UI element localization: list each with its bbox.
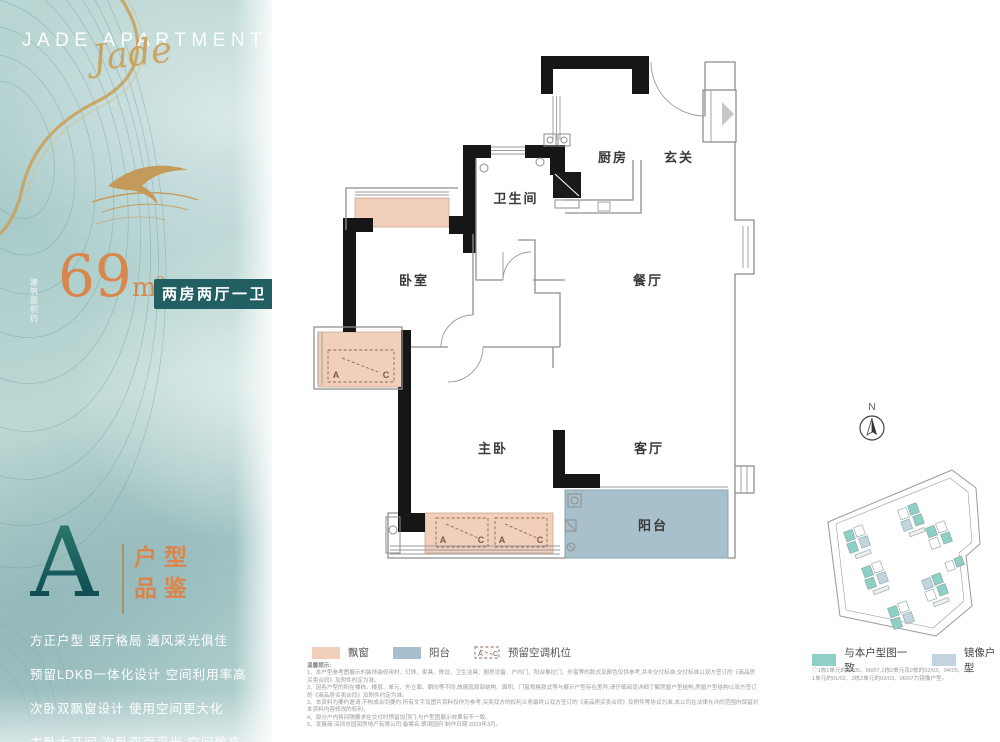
compass-n-label: N bbox=[850, 402, 894, 413]
svg-text:A: A bbox=[478, 651, 483, 658]
walls bbox=[343, 56, 649, 532]
kitchen-sink bbox=[598, 202, 610, 211]
same-unit-swatch bbox=[812, 654, 836, 666]
foyer-marker bbox=[722, 102, 734, 126]
room-bedroom: 卧室 bbox=[399, 273, 429, 288]
legend-bay: 飘窗 bbox=[312, 645, 369, 660]
site-map bbox=[806, 448, 998, 640]
bay-swatch bbox=[312, 647, 340, 659]
svg-text:A: A bbox=[499, 535, 506, 545]
svg-text:A: A bbox=[440, 535, 447, 545]
master-door-arc bbox=[448, 347, 483, 382]
mirror-unit-swatch bbox=[932, 654, 956, 666]
area-prefix: 建筑 面积约 bbox=[30, 278, 39, 323]
fixtures bbox=[386, 134, 581, 553]
legend-balcony: 阳台 bbox=[393, 645, 450, 660]
ac-slot-icon: A C bbox=[474, 646, 500, 659]
bathroom-door-arc bbox=[503, 252, 531, 280]
compass: N bbox=[850, 402, 894, 446]
balcony-swatch bbox=[393, 647, 421, 659]
room-living: 客厅 bbox=[634, 441, 664, 456]
swallow-icon bbox=[92, 166, 198, 224]
entry-door bbox=[651, 62, 705, 116]
feature-list: 方正户型 竖厅格局 通风采光俱佳 预留LDKB一体化设计 空间利用率高 次卧双飘… bbox=[30, 630, 265, 742]
svg-text:C: C bbox=[537, 535, 544, 545]
room-foyer: 玄关 bbox=[664, 150, 694, 165]
area-value: 69m2 bbox=[58, 242, 165, 310]
svg-text:C: C bbox=[478, 535, 485, 545]
brand-panel: JADE APARTMENTS Jade 建筑 面积约 69m2 两房两厅一卫 … bbox=[0, 0, 272, 742]
plan-legend: 飘窗 阳台 A C 预留空调机位 bbox=[312, 645, 595, 660]
room-dining: 餐厅 bbox=[632, 273, 663, 288]
room-kitchen: 厨房 bbox=[598, 150, 628, 165]
room-balcony: 阳台 bbox=[638, 518, 668, 533]
svg-text:C: C bbox=[383, 370, 390, 380]
room-master: 主卧 bbox=[478, 441, 508, 456]
svg-text:A: A bbox=[333, 370, 340, 380]
legend-ac: A C 预留空调机位 bbox=[474, 645, 571, 660]
floor-plan: A C A C A C 厨房 玄关 卫生间 卧室 餐厅 主卧 客厅 阳台 bbox=[298, 50, 770, 630]
partitions bbox=[314, 62, 754, 558]
poster: JADE APARTMENTS Jade 建筑 面积约 69m2 两房两厅一卫 … bbox=[0, 0, 1000, 742]
feature-line: 预留LDKB一体化设计 空间利用率高 bbox=[30, 664, 265, 683]
feature-line: 主卧大开间 次卧双面采光 空间敞亮 bbox=[30, 732, 265, 742]
divider bbox=[122, 544, 124, 614]
disclaimer: 温馨提示: 1、本户型参考图展示的装饰装修用材、灯饰、家具、陈设、卫生洁具、厨房… bbox=[307, 663, 759, 730]
disclaimer-line: 3、本资料为要约邀请,不构成合同要约,所有文字及图片资料仅作为参考,买卖双方的权… bbox=[307, 700, 759, 715]
feature-line: 方正户型 竖厅格局 通风采光俱佳 bbox=[30, 630, 265, 649]
bedroom-door-arc bbox=[441, 315, 473, 347]
disclaimer-line: 1、本户型参考图展示的装饰装修用材、灯饰、家具、陈设、卫生洁具、厨房设备、户内门… bbox=[307, 670, 759, 685]
unit-letter: A bbox=[30, 518, 99, 609]
bay-window-left bbox=[318, 332, 402, 387]
compass-icon bbox=[857, 413, 887, 443]
feature-line: 次卧双飘窗设计 使用空间更大化 bbox=[30, 698, 265, 717]
layout-type-tag: 两房两厅一卫 bbox=[154, 279, 272, 309]
room-bathroom: 卫生间 bbox=[493, 191, 538, 206]
disclaimer-line: 5、发展商:深圳市园润房地产有限公司;备案名:翠璟园府;制作日期:2023年3月… bbox=[307, 722, 759, 729]
site-note: ◇1栋1单元的04/05、06/07,1栋2单元及2栋的02/03、04/05、… bbox=[812, 668, 997, 683]
disclaimer-line: 2、因各户型的所在楼栋、楼层、单元、外立面、朝向等不同,故展现局部结构、面积、门… bbox=[307, 685, 759, 700]
unit-subtitle: 户型 品鉴 bbox=[134, 542, 194, 604]
svg-text:C: C bbox=[493, 651, 498, 658]
